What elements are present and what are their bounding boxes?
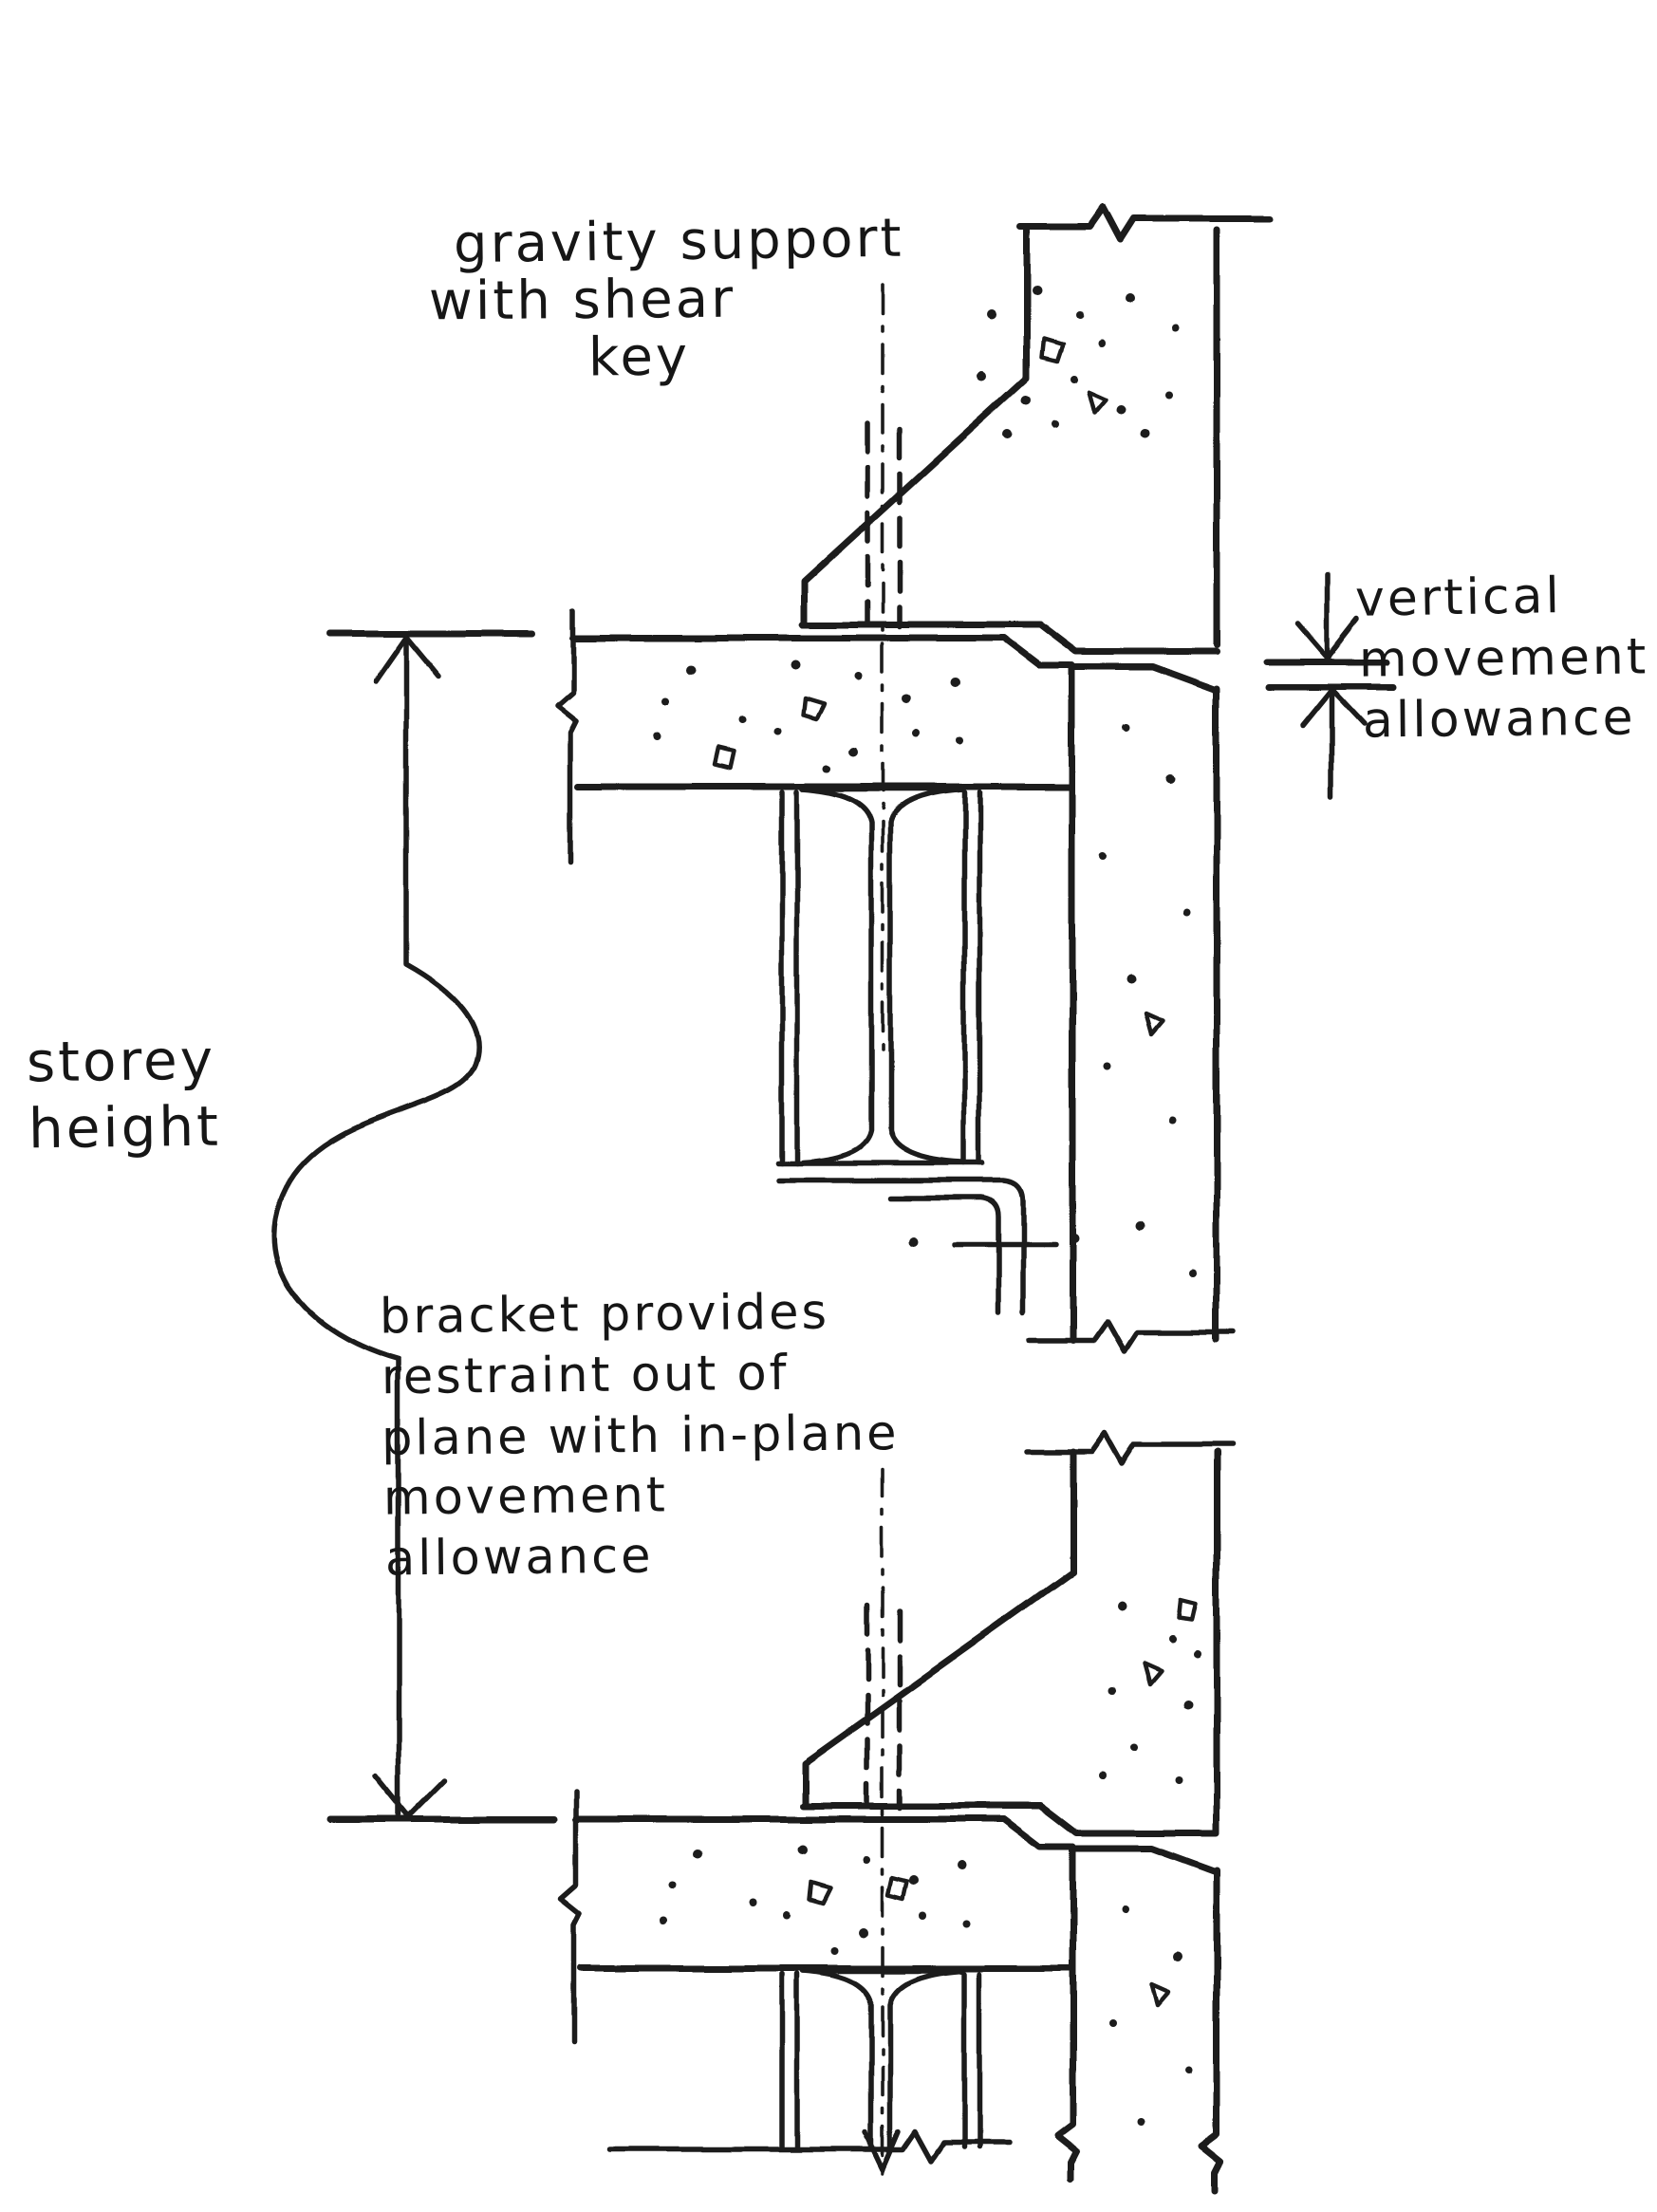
label-bracket-note-line1: bracket provides [380,1285,830,1346]
upper-floor-slab [558,611,1071,862]
label-vertical-movement-line1: vertical [1354,567,1562,628]
label-vertical-movement-line3: allowance [1363,689,1636,749]
storey-height-dimension [274,634,554,1819]
label-gravity-support-line2: with shear [429,269,736,333]
sketch-page: gravity support with shear key vertical … [0,0,1657,2212]
label-gravity-support-line1: gravity support [454,208,904,276]
upper-panel [803,207,1270,652]
label-bracket-note-line5: allowance [385,1529,654,1588]
label-bracket-note-line3: plane with in-plane [382,1405,900,1467]
label-vertical-movement-line2: movement [1359,628,1649,688]
lower-floor-slab [561,1793,1071,2042]
label-storey-height-line2: height [28,1094,222,1162]
steel-beam-upper [778,790,983,1163]
section-drawing [0,0,1657,2212]
label-gravity-support-line3: key [588,326,691,389]
cladding-panel-bottom [1057,1847,1220,2190]
label-storey-height-line1: storey [27,1028,216,1095]
steel-beam-lower [609,1971,1010,2161]
label-bracket-note-line4: movement [383,1467,668,1526]
label-bracket-note-line2: restraint out of [382,1346,790,1405]
